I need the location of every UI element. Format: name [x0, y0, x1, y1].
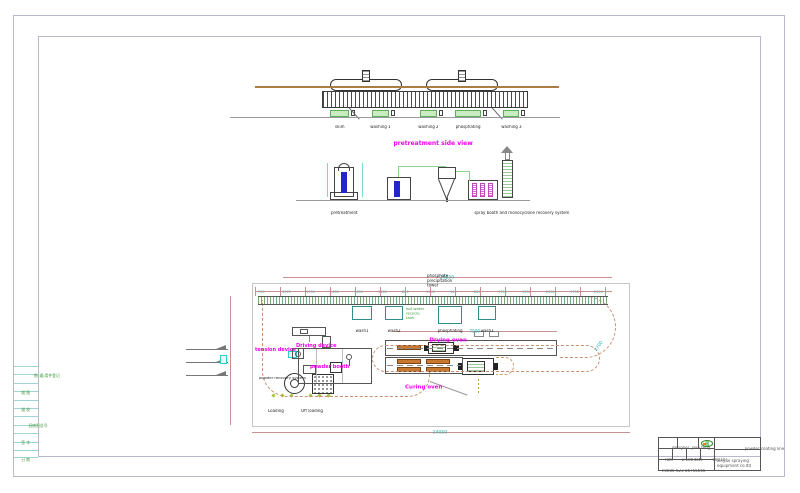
title-block-phone-cell: T:0086-523-86755666 [658, 459, 715, 471]
logo-accent [703, 443, 706, 445]
title-block: designer jake feng powder coating line r… [658, 437, 761, 471]
outer-border-frame [13, 15, 785, 477]
cad-sheet: 日 期签 字旧底图总号描 校描 图借(通)用件登记wash3phosphatin… [0, 0, 800, 493]
title-block-company-cell: xinyue spraying equipment co.ltd [714, 449, 761, 471]
